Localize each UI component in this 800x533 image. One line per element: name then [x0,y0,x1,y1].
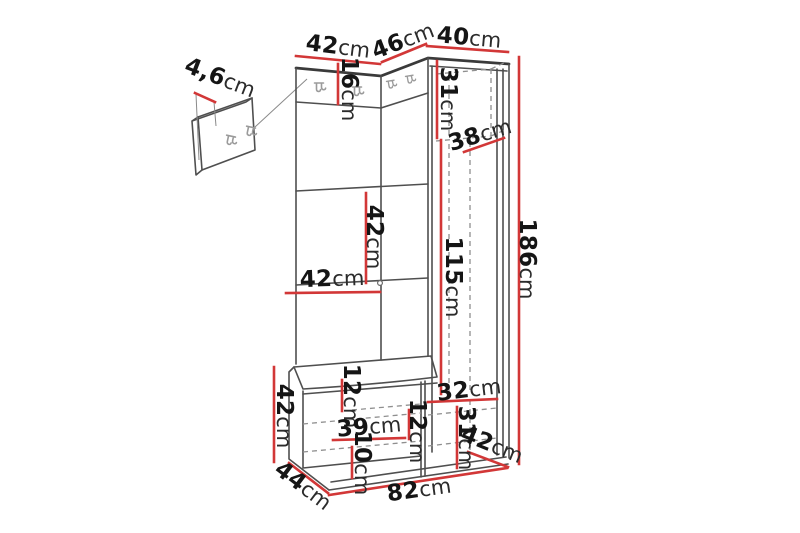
dim-value: 42 [299,266,332,293]
dim-value: 32 [435,377,471,407]
dim-unit: cm [468,374,503,402]
dim-left-panel-width: 42cm [299,265,364,293]
dim-total-width: 82cm [385,473,453,508]
dim-value: 16 [336,57,362,90]
coat-hook-icon [405,75,416,84]
furniture-drawing: 42cm 46cm 40cm 4,6cm 16cm 31cm 38cm 42cm… [0,0,800,533]
coat-hook-icon [245,126,258,137]
dim-unit: cm [436,99,460,131]
coat-hook-icon [225,135,238,146]
dim-value: 12 [338,364,364,397]
dimension-diagram: 42cm 46cm 40cm 4,6cm 16cm 31cm 38cm 42cm… [0,0,800,533]
dim-unit: cm [350,463,374,495]
dim-value: 186 [514,219,540,268]
dim-unit: cm [337,89,361,121]
dim-hook-panel-height: 16cm [336,57,362,122]
dim-top-shelf-height: 31cm [435,67,461,132]
dim-bench-mid-section: 12cm [404,399,430,464]
dim-lower-shelf-width: 32cm [435,373,502,407]
dim-value: 10 [349,431,375,464]
dim-value: 42 [271,384,297,417]
dim-value: 31 [435,67,461,100]
dim-total-height: 186cm [514,219,540,300]
dim-value: 40 [436,22,471,51]
dim-unit: cm [362,237,386,269]
dim-top-right-width: 40cm [436,22,503,54]
dim-wall-panel-depth: 4,6cm [181,53,259,104]
dim-hanging-space-height: 115cm [440,237,466,318]
dim-value: 42 [361,205,387,238]
dim-unit: cm [468,26,502,53]
dim-bench-bottom-section: 10cm [349,431,375,496]
dim-unit: cm [405,431,429,463]
dim-value: 82 [385,477,421,507]
dim-value: 42 [304,30,340,60]
coat-hook-icon [315,83,326,91]
dimension-labels: 42cm 46cm 40cm 4,6cm 16cm 31cm 38cm 42cm… [181,17,540,516]
dim-unit: cm [220,69,258,103]
dim-unit: cm [515,267,539,299]
dim-left-section-height: 42cm [361,205,387,270]
dim-unit: cm [332,266,365,291]
dim-unit: cm [441,285,465,317]
dim-unit: cm [418,474,453,502]
dim-value: 115 [440,237,466,286]
coat-hook-icon [386,80,397,89]
dim-unit: cm [272,416,296,448]
dim-bench-height: 42cm [271,384,297,449]
dim-value: 12 [404,399,430,432]
